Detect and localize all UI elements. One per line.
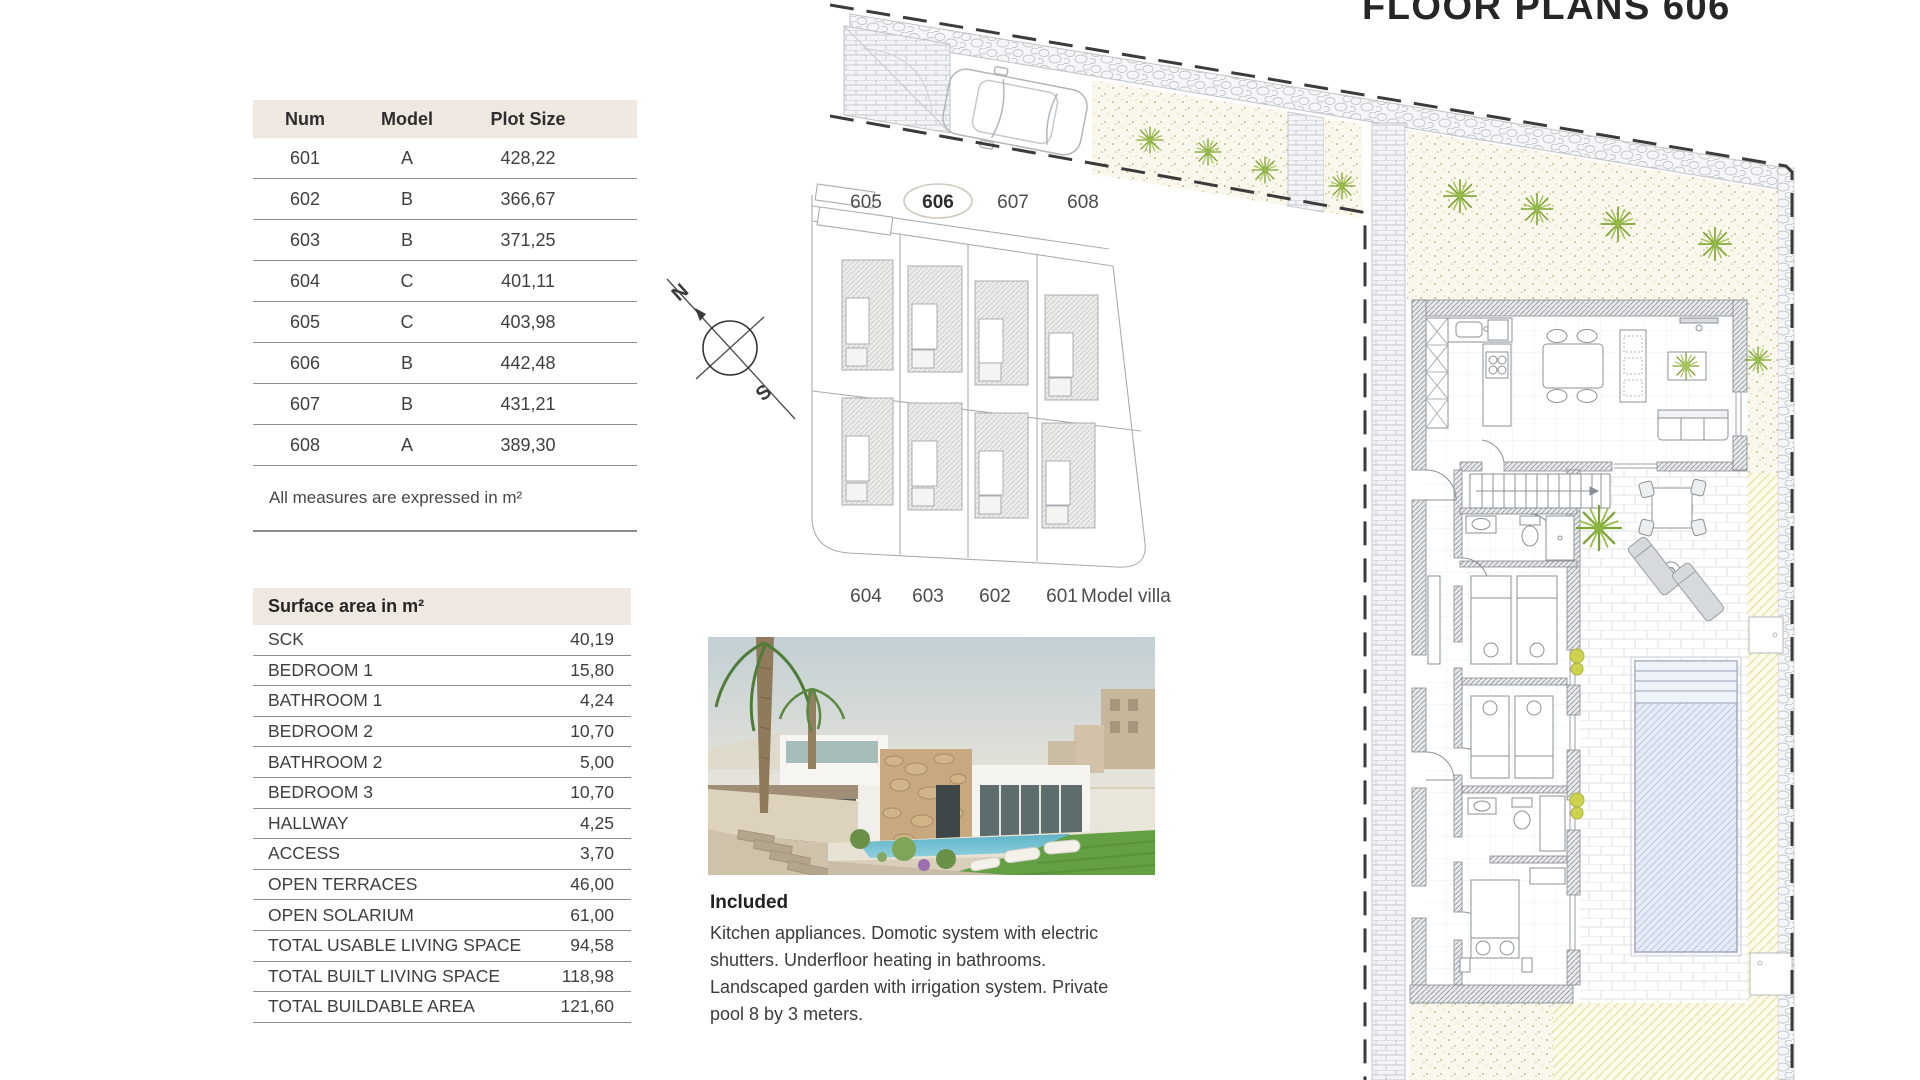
table-row: BATHROOM 14,24 <box>253 686 631 717</box>
cell-plot-size: 442,48 <box>457 353 637 374</box>
plot-table-header: Num Model Plot Size <box>253 100 637 138</box>
row-value: 10,70 <box>570 721 614 742</box>
table-row: BATHROOM 25,00 <box>253 747 631 778</box>
row-label: SCK <box>268 629 304 650</box>
table-row: 601A428,22 <box>253 138 637 179</box>
row-label: TOTAL BUILT LIVING SPACE <box>268 966 500 987</box>
row-label: BEDROOM 1 <box>268 660 373 681</box>
row-value: 3,70 <box>580 843 614 864</box>
cell-num: 606 <box>253 353 357 374</box>
cell-model: B <box>357 394 457 415</box>
compass-south-label: S <box>752 380 777 405</box>
row-label: TOTAL BUILDABLE AREA <box>268 996 475 1017</box>
cell-model: C <box>357 312 457 333</box>
col-header-plot-size: Plot Size <box>457 109 637 130</box>
row-label: BATHROOM 2 <box>268 752 382 773</box>
table-row: TOTAL BUILDABLE AREA121,60 <box>253 992 631 1023</box>
row-value: 94,58 <box>570 935 614 956</box>
pool <box>1631 657 1741 956</box>
row-value: 15,80 <box>570 660 614 681</box>
cell-plot-size: 366,67 <box>457 189 637 210</box>
row-value: 61,00 <box>570 905 614 926</box>
row-value: 4,24 <box>580 690 614 711</box>
table-row: OPEN SOLARIUM61,00 <box>253 900 631 931</box>
cell-num: 608 <box>253 435 357 456</box>
cell-plot-size: 431,21 <box>457 394 637 415</box>
table-row: 605C403,98 <box>253 302 637 343</box>
table-row: 606B442,48 <box>253 343 637 384</box>
row-value: 121,60 <box>560 996 614 1017</box>
floor-plan-606-drawing <box>830 0 1920 1080</box>
divider-rule <box>253 530 637 532</box>
plot-size-table: Num Model Plot Size 601A428,22 602B366,6… <box>253 100 637 466</box>
floor-plan-sheet: Num Model Plot Size 601A428,22 602B366,6… <box>0 0 1920 1080</box>
cell-model: C <box>357 271 457 292</box>
cell-plot-size: 371,25 <box>457 230 637 251</box>
table-row: BEDROOM 310,70 <box>253 778 631 809</box>
table-row: 608A389,30 <box>253 425 637 466</box>
row-label: OPEN SOLARIUM <box>268 905 414 926</box>
table-row: HALLWAY4,25 <box>253 809 631 840</box>
included-heading: Included <box>710 892 788 914</box>
cell-num: 601 <box>253 148 357 169</box>
cell-num: 602 <box>253 189 357 210</box>
cell-plot-size: 389,30 <box>457 435 637 456</box>
table-row: 602B366,67 <box>253 179 637 220</box>
surface-table-header: Surface area in m² <box>253 588 631 625</box>
table-row: SCK40,19 <box>253 625 631 656</box>
cell-model: B <box>357 353 457 374</box>
row-label: OPEN TERRACES <box>268 874 417 895</box>
table-row: OPEN TERRACES46,00 <box>253 870 631 901</box>
table-row: ACCESS3,70 <box>253 839 631 870</box>
cell-num: 603 <box>253 230 357 251</box>
terrace-tree <box>1577 506 1621 550</box>
table-row: 603B371,25 <box>253 220 637 261</box>
row-label: ACCESS <box>268 843 340 864</box>
row-label: BEDROOM 2 <box>268 721 373 742</box>
table-row: TOTAL USABLE LIVING SPACE94,58 <box>253 931 631 962</box>
row-label: TOTAL USABLE LIVING SPACE <box>268 935 521 956</box>
table-row: BEDROOM 210,70 <box>253 717 631 748</box>
row-label: BATHROOM 1 <box>268 690 382 711</box>
table-row: BEDROOM 115,80 <box>253 656 631 687</box>
cell-num: 604 <box>253 271 357 292</box>
stairs <box>1470 474 1610 508</box>
compass-icon: N S <box>655 250 805 430</box>
cell-plot-size: 428,22 <box>457 148 637 169</box>
surface-area-table: Surface area in m² SCK40,19 BEDROOM 115,… <box>253 588 631 1023</box>
table-row: 604C401,11 <box>253 261 637 302</box>
col-header-model: Model <box>357 109 457 130</box>
cell-plot-size: 403,98 <box>457 312 637 333</box>
boundary-wall-left <box>1372 123 1405 1080</box>
row-value: 5,00 <box>580 752 614 773</box>
row-value: 40,19 <box>570 629 614 650</box>
table-row: 607B431,21 <box>253 384 637 425</box>
row-label: HALLWAY <box>268 813 348 834</box>
measures-note: All measures are expressed in m² <box>253 488 637 508</box>
row-value: 46,00 <box>570 874 614 895</box>
table-row: TOTAL BUILT LIVING SPACE118,98 <box>253 962 631 993</box>
cell-model: B <box>357 189 457 210</box>
col-header-num: Num <box>253 109 357 130</box>
lawn-bottom <box>1553 1003 1763 1080</box>
cell-plot-size: 401,11 <box>457 271 637 292</box>
cell-model: A <box>357 435 457 456</box>
cell-model: B <box>357 230 457 251</box>
cell-num: 607 <box>253 394 357 415</box>
row-label: BEDROOM 3 <box>268 782 373 803</box>
row-value: 4,25 <box>580 813 614 834</box>
cell-model: A <box>357 148 457 169</box>
row-value: 10,70 <box>570 782 614 803</box>
indoor-plant <box>1673 353 1699 379</box>
row-value: 118,98 <box>562 966 614 987</box>
cell-num: 605 <box>253 312 357 333</box>
